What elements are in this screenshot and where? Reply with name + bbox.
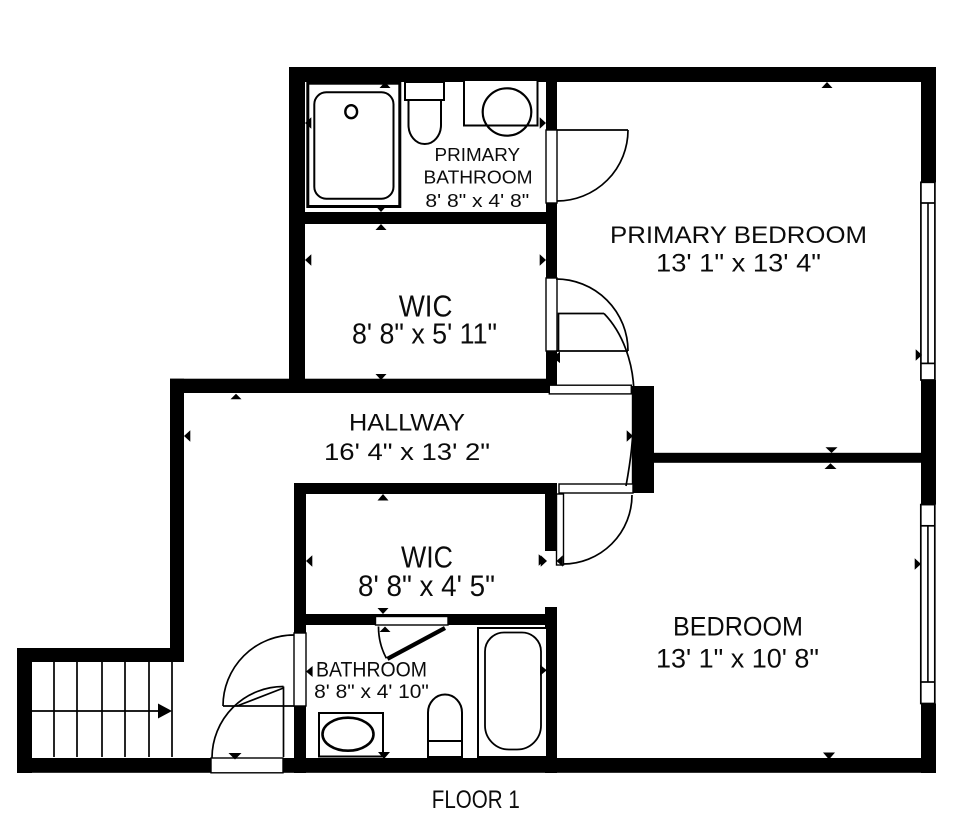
svg-text:8' 8" x 5' 11": 8' 8" x 5' 11" (352, 319, 497, 351)
svg-text:BEDROOM: BEDROOM (673, 611, 803, 641)
svg-text:BATHROOM: BATHROOM (316, 657, 427, 682)
svg-text:13' 1" x 13' 4": 13' 1" x 13' 4" (656, 250, 821, 278)
svg-text:BATHROOM: BATHROOM (424, 167, 533, 188)
svg-text:FLOOR 1: FLOOR 1 (432, 787, 520, 814)
svg-text:8' 8" x 4' 5": 8' 8" x 4' 5" (358, 570, 495, 603)
svg-text:8' 8" x 4' 10": 8' 8" x 4' 10" (314, 682, 429, 703)
svg-text:PRIMARY BEDROOM: PRIMARY BEDROOM (610, 222, 867, 249)
svg-text:PRIMARY: PRIMARY (435, 144, 521, 165)
svg-text:WIC: WIC (401, 539, 453, 574)
svg-text:16' 4" x 13' 2": 16' 4" x 13' 2" (324, 439, 490, 466)
svg-text:HALLWAY: HALLWAY (349, 410, 465, 437)
svg-text:13' 1" x 10' 8": 13' 1" x 10' 8" (656, 644, 819, 674)
svg-text:8' 8" x 4' 8": 8' 8" x 4' 8" (425, 190, 529, 211)
